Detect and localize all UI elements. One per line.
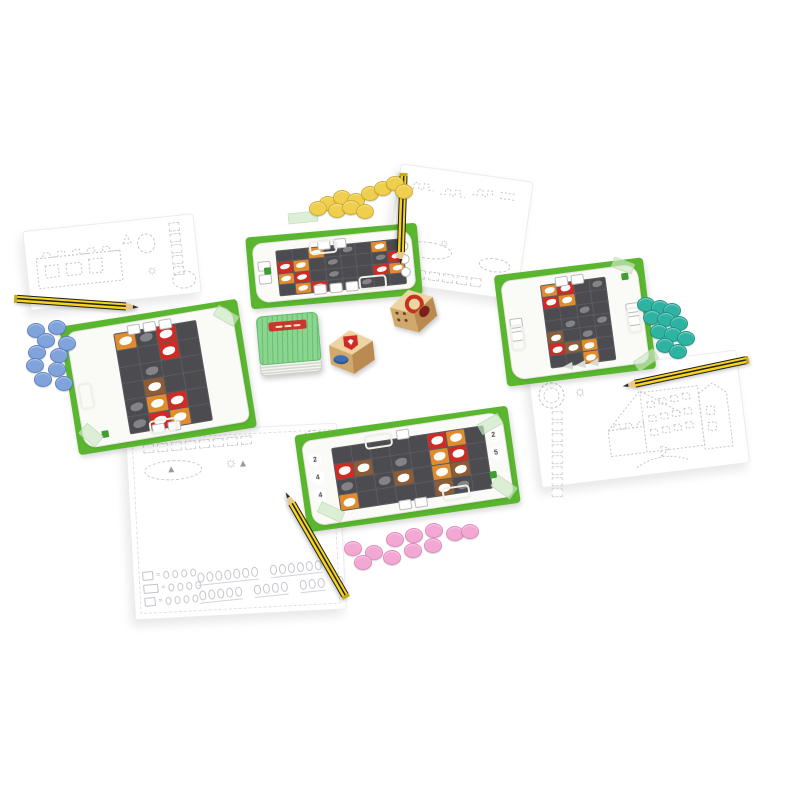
empty-tile — [342, 266, 358, 278]
empty-tile — [575, 292, 592, 305]
empty-tile — [472, 473, 492, 490]
score-oval-group — [270, 560, 323, 578]
track-square — [552, 422, 563, 431]
faint-food-tile — [375, 472, 395, 489]
pink-token — [424, 538, 442, 553]
icon-box — [126, 323, 140, 335]
track-square — [552, 433, 563, 442]
shield-column-left: 244 — [308, 452, 328, 504]
player-board-right — [494, 257, 657, 386]
food-icon — [327, 259, 338, 266]
food-tile — [543, 296, 560, 309]
empty-tile — [276, 250, 292, 262]
food-tile — [277, 261, 293, 273]
food-icon — [435, 466, 448, 477]
yellow-token — [356, 204, 374, 219]
food-tile — [373, 263, 389, 275]
track-square — [199, 439, 211, 449]
empty-tile — [358, 490, 378, 507]
empty-tile — [341, 255, 357, 267]
green-chip — [621, 273, 629, 281]
score-oval — [254, 584, 262, 595]
score-oval-group — [197, 567, 259, 586]
sun-icon: ☼ — [224, 455, 239, 471]
food-icon — [397, 472, 410, 483]
food-tile — [547, 331, 564, 344]
score-oval-group — [199, 586, 243, 603]
empty-tile — [408, 435, 428, 452]
food-icon — [395, 457, 408, 468]
pink-token — [425, 523, 443, 538]
track-square — [185, 440, 197, 450]
equals-symbol: = — [161, 584, 166, 591]
empty-tile — [356, 475, 376, 492]
food-icon — [550, 334, 561, 342]
food-icon — [432, 451, 445, 462]
food-icon — [584, 341, 595, 349]
score-oval — [197, 572, 205, 583]
card-deck-logo — [268, 319, 307, 331]
gate-marker — [441, 484, 471, 502]
empty-tile — [413, 466, 433, 483]
score-oval — [226, 587, 234, 598]
battlement-doodles — [405, 171, 523, 213]
score-oval — [217, 588, 225, 599]
equals-symbol: = — [158, 597, 163, 604]
empty-tile — [410, 450, 430, 467]
food-tile — [279, 273, 295, 285]
score-oval — [270, 565, 278, 576]
empty-tile — [176, 321, 198, 340]
empty-tile — [117, 348, 139, 367]
edge-icons-top — [395, 428, 409, 440]
food-tile — [371, 241, 387, 253]
tile-grid — [540, 277, 617, 369]
icon-box — [413, 496, 427, 508]
empty-tile — [596, 325, 613, 338]
board-mat — [253, 229, 416, 302]
faint-food-tile — [589, 278, 606, 291]
track-start-circle — [537, 381, 566, 410]
food-icon — [129, 401, 144, 413]
pink-token — [386, 532, 404, 547]
flag-icon — [562, 362, 573, 371]
track-square — [552, 455, 563, 464]
empty-tile — [546, 319, 563, 332]
food-icon — [144, 365, 159, 377]
food-icon — [375, 254, 386, 261]
track-square — [171, 244, 183, 254]
track-square — [470, 277, 482, 287]
food-icon — [579, 306, 590, 314]
score-oval — [308, 579, 316, 590]
empty-tile — [597, 336, 614, 349]
food-tile — [429, 448, 449, 465]
score-oval — [299, 580, 307, 591]
food-icon — [281, 275, 292, 282]
score-oval — [280, 582, 288, 593]
card-deck-top-card — [256, 311, 322, 365]
blue-token — [55, 376, 73, 391]
pink-token — [344, 541, 362, 556]
sun-icon: ☼ — [145, 262, 158, 276]
score-oval — [235, 586, 243, 597]
icon-box — [570, 273, 584, 285]
empty-tile — [310, 269, 326, 281]
tree-doodle — [240, 460, 246, 466]
icon-box — [313, 284, 327, 295]
flag-icon — [588, 358, 599, 367]
food-tile — [448, 445, 468, 462]
blue-token — [50, 348, 68, 363]
track-square — [143, 444, 155, 454]
score-oval — [215, 570, 223, 581]
food-icon — [147, 381, 162, 393]
blue-oval-icon — [333, 355, 348, 365]
food-tile — [427, 432, 447, 449]
food-tile — [339, 493, 359, 510]
food-icon — [150, 398, 165, 410]
score-oval — [287, 563, 295, 574]
food-icon — [568, 343, 579, 351]
empty-tile — [592, 301, 609, 314]
faint-food-tile — [372, 252, 388, 264]
food-icon — [357, 462, 370, 473]
food-icon — [340, 481, 353, 492]
score-oval — [317, 578, 325, 589]
pips-icon — [395, 312, 410, 325]
icon-circle — [400, 267, 411, 278]
food-tile — [450, 460, 470, 477]
pink-token — [405, 528, 423, 543]
tabletop-scene: ☼ ☼ ☼ — [0, 0, 800, 800]
empty-tile — [469, 457, 489, 474]
legend-icon — [144, 597, 156, 607]
red-shield-icon — [343, 334, 358, 350]
empty-tile — [280, 284, 296, 296]
teal-token — [669, 344, 687, 359]
food-tile — [549, 343, 566, 356]
food-icon — [162, 345, 177, 357]
score-oval — [262, 583, 270, 594]
faint-food-tile — [128, 414, 150, 433]
track-square — [552, 488, 563, 497]
green-chip — [264, 267, 272, 275]
food-icon — [561, 296, 572, 304]
food-icon — [374, 243, 385, 250]
score-oval — [206, 571, 214, 582]
sun-icon: ☼ — [439, 237, 451, 249]
card-deck — [256, 311, 323, 374]
tree-doodle — [168, 466, 174, 472]
food-icon — [545, 298, 556, 306]
gate-marker — [148, 417, 178, 435]
food-icon — [298, 284, 309, 291]
score-oval — [199, 590, 207, 601]
shield-badge: 2 — [308, 452, 323, 469]
empty-tile — [578, 315, 595, 328]
empty-tile — [372, 456, 392, 473]
food-icon — [565, 320, 576, 328]
score-oval — [233, 568, 241, 579]
food-tile — [335, 462, 355, 479]
wooden-die-ring — [387, 284, 441, 341]
score-oval — [296, 562, 304, 573]
pink-token — [404, 543, 422, 558]
empty-tile — [332, 446, 352, 463]
legend-row: = — [143, 580, 202, 594]
gate-marker — [77, 382, 95, 410]
board-mat — [66, 306, 249, 448]
food-tile — [158, 341, 180, 360]
food-tile — [293, 260, 309, 272]
track-square — [171, 441, 183, 451]
track-square — [552, 444, 563, 453]
empty-tile — [292, 249, 308, 261]
blue-token — [26, 358, 44, 373]
empty-tile — [309, 258, 325, 270]
faint-food-tile — [594, 313, 611, 326]
faint-food-tile — [562, 317, 579, 330]
empty-tile — [190, 404, 212, 423]
blue-token — [48, 320, 66, 335]
track-square — [168, 222, 180, 232]
empty-tile — [544, 308, 561, 321]
shield-badge: 4 — [310, 470, 325, 487]
food-icon — [451, 448, 464, 459]
score-legend: = = = — [142, 567, 203, 607]
icon-box — [142, 321, 156, 333]
track-square — [172, 255, 184, 265]
legend-icon — [143, 584, 159, 594]
turn-track — [552, 411, 563, 497]
food-icon — [582, 329, 593, 337]
shield-doodle — [136, 232, 156, 254]
legend-icon — [142, 571, 154, 581]
icon-box — [345, 281, 359, 292]
score-oval — [278, 564, 286, 575]
food-icon — [329, 270, 340, 277]
track-square — [552, 477, 563, 486]
food-tile — [394, 469, 414, 486]
food-tile — [446, 429, 466, 446]
track-square — [442, 273, 454, 283]
food-tile — [565, 341, 582, 354]
legend-row: = — [142, 567, 201, 581]
icon-box — [395, 428, 409, 440]
faint-food-tile — [579, 327, 596, 340]
food-tile — [431, 463, 451, 480]
shield-badge: 5 — [489, 445, 504, 462]
pink-token — [461, 524, 479, 539]
track-square — [428, 271, 440, 281]
gate-marker — [358, 274, 387, 291]
blue-token — [34, 372, 52, 387]
food-icon — [118, 335, 133, 347]
empty-tile — [560, 306, 577, 319]
food-icon — [132, 418, 147, 430]
score-oval — [208, 589, 216, 600]
track-square — [456, 275, 468, 285]
castle-outline-drawing — [30, 231, 139, 300]
food-icon — [159, 328, 174, 340]
pink-token — [354, 555, 372, 570]
gate-marker — [308, 239, 337, 256]
food-icon — [343, 496, 356, 507]
equals-symbol: = — [156, 571, 161, 578]
food-icon — [430, 435, 443, 446]
score-oval — [251, 567, 259, 578]
flag-icon — [575, 360, 586, 369]
icon-box — [554, 276, 568, 288]
food-tile — [581, 339, 598, 352]
faint-food-tile — [391, 453, 411, 470]
food-icon — [297, 273, 308, 280]
food-icon — [139, 332, 154, 344]
oval-doodle — [478, 256, 512, 274]
food-icon — [376, 265, 387, 272]
gate-marker — [509, 324, 526, 352]
track-square — [226, 436, 238, 446]
empty-tile — [356, 254, 372, 266]
shield-column-right: 25 — [486, 427, 504, 462]
score-oval-group — [254, 582, 289, 598]
food-icon — [592, 280, 603, 288]
pink-token — [383, 550, 401, 565]
food-icon — [296, 262, 307, 269]
empty-tile — [563, 329, 580, 342]
food-icon — [544, 287, 555, 295]
yellow-token — [395, 184, 413, 199]
faint-food-tile — [576, 303, 593, 316]
track-square — [552, 466, 563, 475]
food-tile — [353, 459, 373, 476]
food-icon — [170, 394, 185, 406]
score-oval — [224, 569, 232, 580]
faint-food-tile — [337, 477, 357, 494]
track-square — [240, 435, 252, 445]
food-icon — [552, 345, 563, 353]
wooden-die-shield — [328, 328, 377, 380]
empty-tile — [467, 442, 487, 459]
food-tile — [294, 271, 310, 283]
empty-tile — [138, 345, 160, 364]
track-square — [169, 233, 181, 243]
score-circle — [171, 269, 197, 289]
food-icon — [449, 432, 462, 443]
faint-food-tile — [325, 257, 341, 269]
turn-track — [168, 222, 184, 276]
icon-box — [259, 274, 273, 285]
track-square — [212, 438, 224, 448]
empty-tile — [591, 289, 608, 302]
score-oval-group — [299, 578, 325, 594]
score-oval — [242, 567, 250, 578]
score-oval — [271, 582, 279, 593]
sun-icon: ☼ — [572, 383, 587, 400]
empty-tile — [355, 242, 371, 254]
score-oval — [305, 561, 313, 572]
track-square — [552, 411, 563, 420]
icon-box — [158, 318, 172, 330]
food-tile — [559, 294, 576, 307]
food-tile — [295, 282, 311, 294]
empty-tile — [179, 338, 201, 357]
food-icon — [378, 475, 391, 486]
icon-box — [398, 499, 412, 511]
food-icon — [338, 465, 351, 476]
icon-box — [329, 282, 343, 293]
faint-food-tile — [326, 268, 342, 280]
food-icon — [280, 263, 291, 270]
empty-tile — [377, 487, 397, 504]
food-icon — [597, 315, 608, 323]
track-square — [157, 443, 169, 453]
legend-row: = — [144, 593, 203, 607]
tile-grid — [113, 320, 213, 435]
yellow-token — [309, 201, 327, 216]
board-mat — [501, 264, 649, 379]
food-icon — [454, 464, 467, 475]
empty-tile — [599, 348, 616, 361]
